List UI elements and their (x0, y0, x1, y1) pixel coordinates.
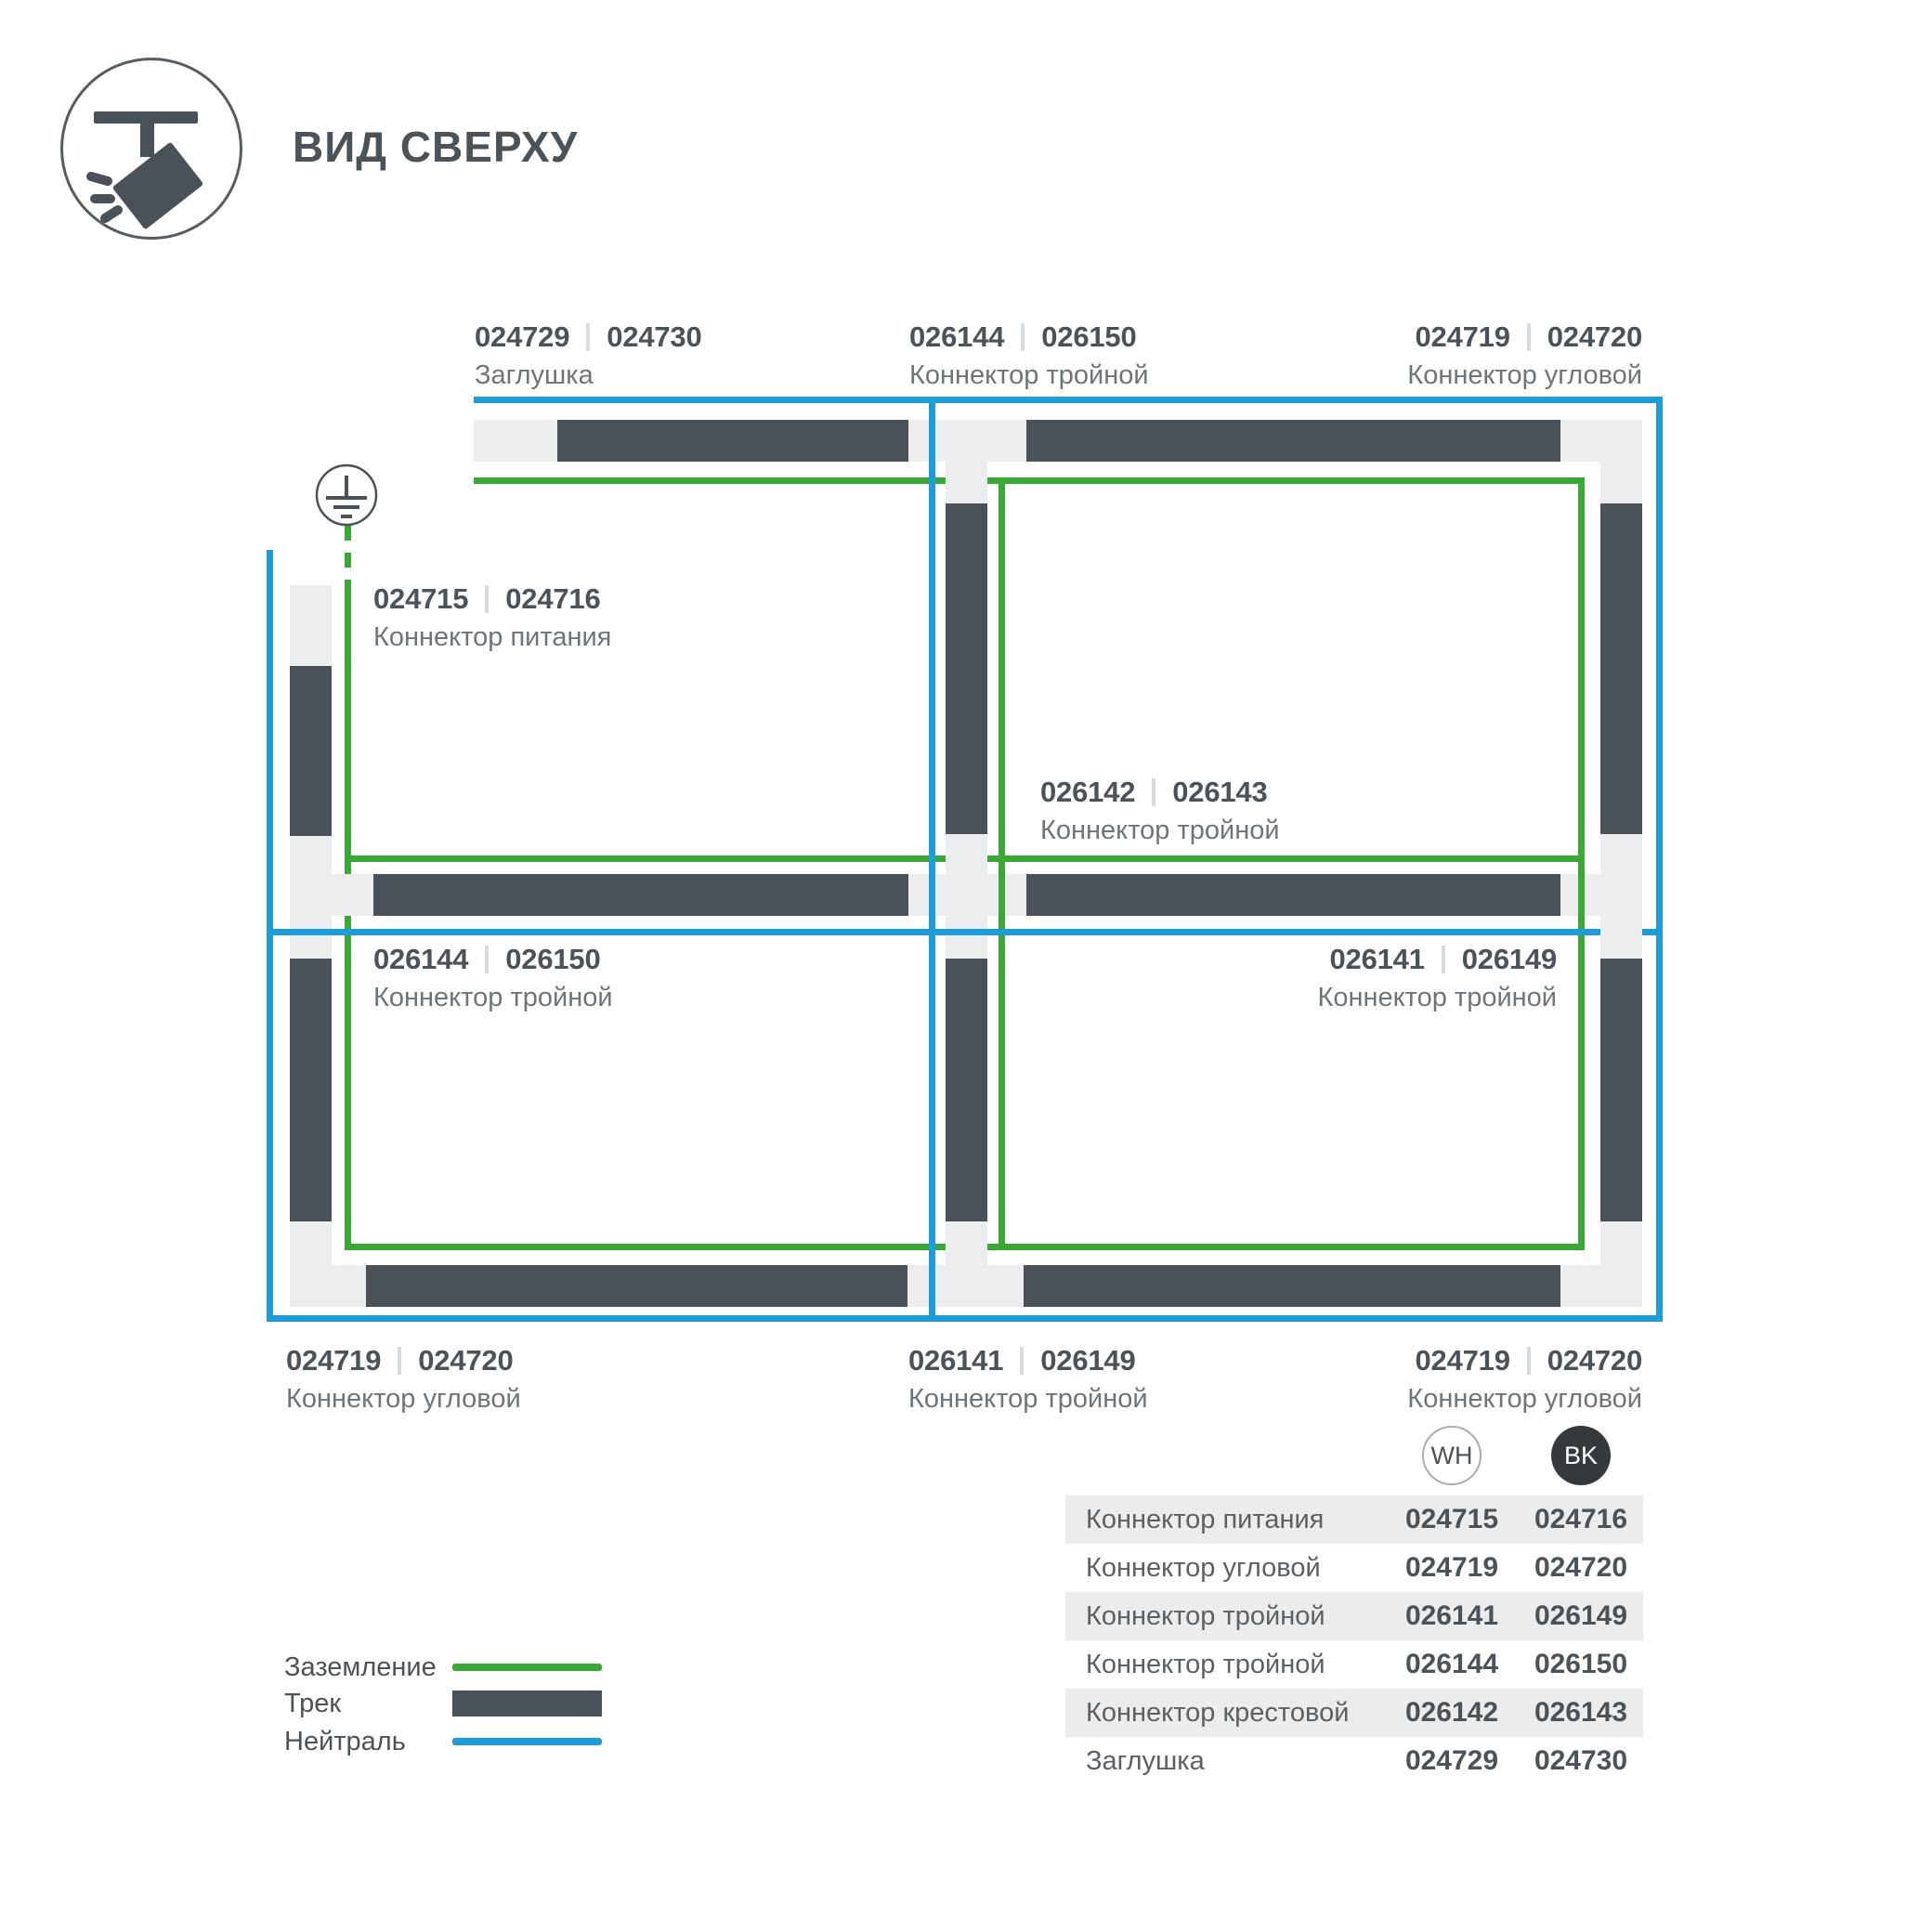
ground-line-center-v (999, 477, 1005, 1250)
track-left-upper (290, 666, 332, 836)
track-center-lower (946, 959, 987, 1221)
track-center-upper (946, 503, 987, 834)
ground-line-right-v (1578, 477, 1585, 1250)
tee-left-connector (290, 836, 332, 959)
table-row: Коннектор тройной 026144 026150 (1065, 1640, 1643, 1689)
tee-top-connector (908, 420, 1026, 462)
label-divider (1527, 323, 1531, 351)
end-cap-top (474, 420, 557, 462)
corner-top-right-connector-v (1600, 420, 1642, 503)
tee-top-connector-stem (946, 462, 987, 503)
color-badge-black: BK (1551, 1426, 1611, 1485)
neutral-line-bottom (267, 1315, 1663, 1322)
table-row: Коннектор крестовой 026142 026143 (1065, 1689, 1643, 1737)
label-tee-top: 026144026150 Коннектор тройной (909, 321, 1149, 389)
label-divider (1527, 1347, 1531, 1375)
track-middle-right (1026, 874, 1560, 916)
label-divider (485, 946, 489, 973)
table-row: Заглушка 024729 024730 (1065, 1737, 1643, 1785)
label-divider (1021, 323, 1025, 351)
table-row: Коннектор тройной 026141 026149 (1065, 1592, 1643, 1640)
label-corner-bottom-right: 024719024720 Коннектор угловой (1407, 1345, 1642, 1413)
legend-label-ground: Заземление (284, 1652, 437, 1682)
neutral-line-center-v (929, 397, 935, 1322)
legend-label-track: Трек (284, 1689, 341, 1718)
tee-bottom-connector-stem (946, 1221, 987, 1265)
page-title: ВИД СВЕРХУ (293, 124, 578, 169)
legend-swatch-neutral-line (452, 1738, 602, 1745)
neutral-line-mid-a (269, 929, 1600, 935)
ground-line-left-upper (345, 583, 351, 874)
table-row: Коннектор питания 024715 024716 (1065, 1495, 1643, 1544)
label-tee-bottom: 026141026149 Коннектор тройной (908, 1345, 1148, 1413)
earth-symbol (314, 463, 379, 528)
page: ВИД СВЕРХУ (0, 0, 1932, 1932)
label-corner-bottom-left: 024719024720 Коннектор угловой (286, 1345, 521, 1413)
ground-line-bottom-b (987, 1244, 1585, 1250)
ground-line-top-b (987, 477, 1585, 484)
track-bottom-right (1024, 1265, 1560, 1307)
legend-label-neutral: Нейтраль (284, 1727, 406, 1756)
label-divider (1152, 778, 1155, 806)
track-top-left (557, 420, 908, 462)
label-divider (1442, 946, 1445, 973)
power-connector (290, 585, 332, 666)
ground-line-left-lower (345, 916, 351, 1250)
track-right-upper (1600, 503, 1642, 834)
track-light-icon (60, 58, 242, 240)
cross-connector-v (946, 834, 987, 959)
parts-table: Коннектор питания 024715 024716 Коннекто… (1065, 1495, 1643, 1785)
color-badge-white: WH (1422, 1426, 1482, 1485)
neutral-line-right (1656, 397, 1663, 1322)
label-tee-left: 026144026150 Коннектор тройной (373, 944, 613, 1012)
neutral-line-top (474, 397, 1663, 403)
track-bottom-left (366, 1265, 907, 1307)
label-divider (485, 585, 489, 613)
label-divider (398, 1347, 401, 1375)
legend-swatch-ground-line (452, 1664, 602, 1671)
label-cross-connector: 026142026143 Коннектор тройной (1040, 777, 1280, 844)
ground-line-bottom-a (345, 1244, 946, 1250)
tee-right-connector (1600, 834, 1642, 959)
label-divider (586, 323, 590, 351)
neutral-line-left (267, 550, 273, 1322)
label-tee-right: 026141026149 Коннектор тройной (1317, 944, 1557, 1012)
label-corner-top-right: 024719024720 Коннектор угловой (1407, 321, 1642, 389)
tee-bottom-connector (907, 1265, 1024, 1307)
ground-dashed-lead (345, 526, 351, 583)
corner-bottom-left-connector-h (290, 1265, 366, 1307)
corner-bottom-right-connector-h (1560, 1265, 1642, 1307)
ground-line-mid-b (987, 855, 1585, 862)
track-right-lower (1600, 959, 1642, 1221)
track-left-lower (290, 959, 332, 1221)
neutral-line-mid-b (1642, 929, 1663, 935)
table-row: Коннектор угловой 024719 024720 (1065, 1544, 1643, 1592)
label-end-cap: 024729024730 Заглушка (475, 321, 702, 389)
tee-left-connector-stem (332, 874, 373, 916)
ground-line-top-a (474, 477, 946, 484)
track-top-right (1026, 420, 1560, 462)
track-middle-left (373, 874, 908, 916)
legend-swatch-track-bar (452, 1690, 602, 1717)
label-divider (1020, 1347, 1024, 1375)
label-power-connector: 024715024716 Коннектор питания (373, 583, 611, 651)
ground-line-mid-a (347, 855, 946, 862)
